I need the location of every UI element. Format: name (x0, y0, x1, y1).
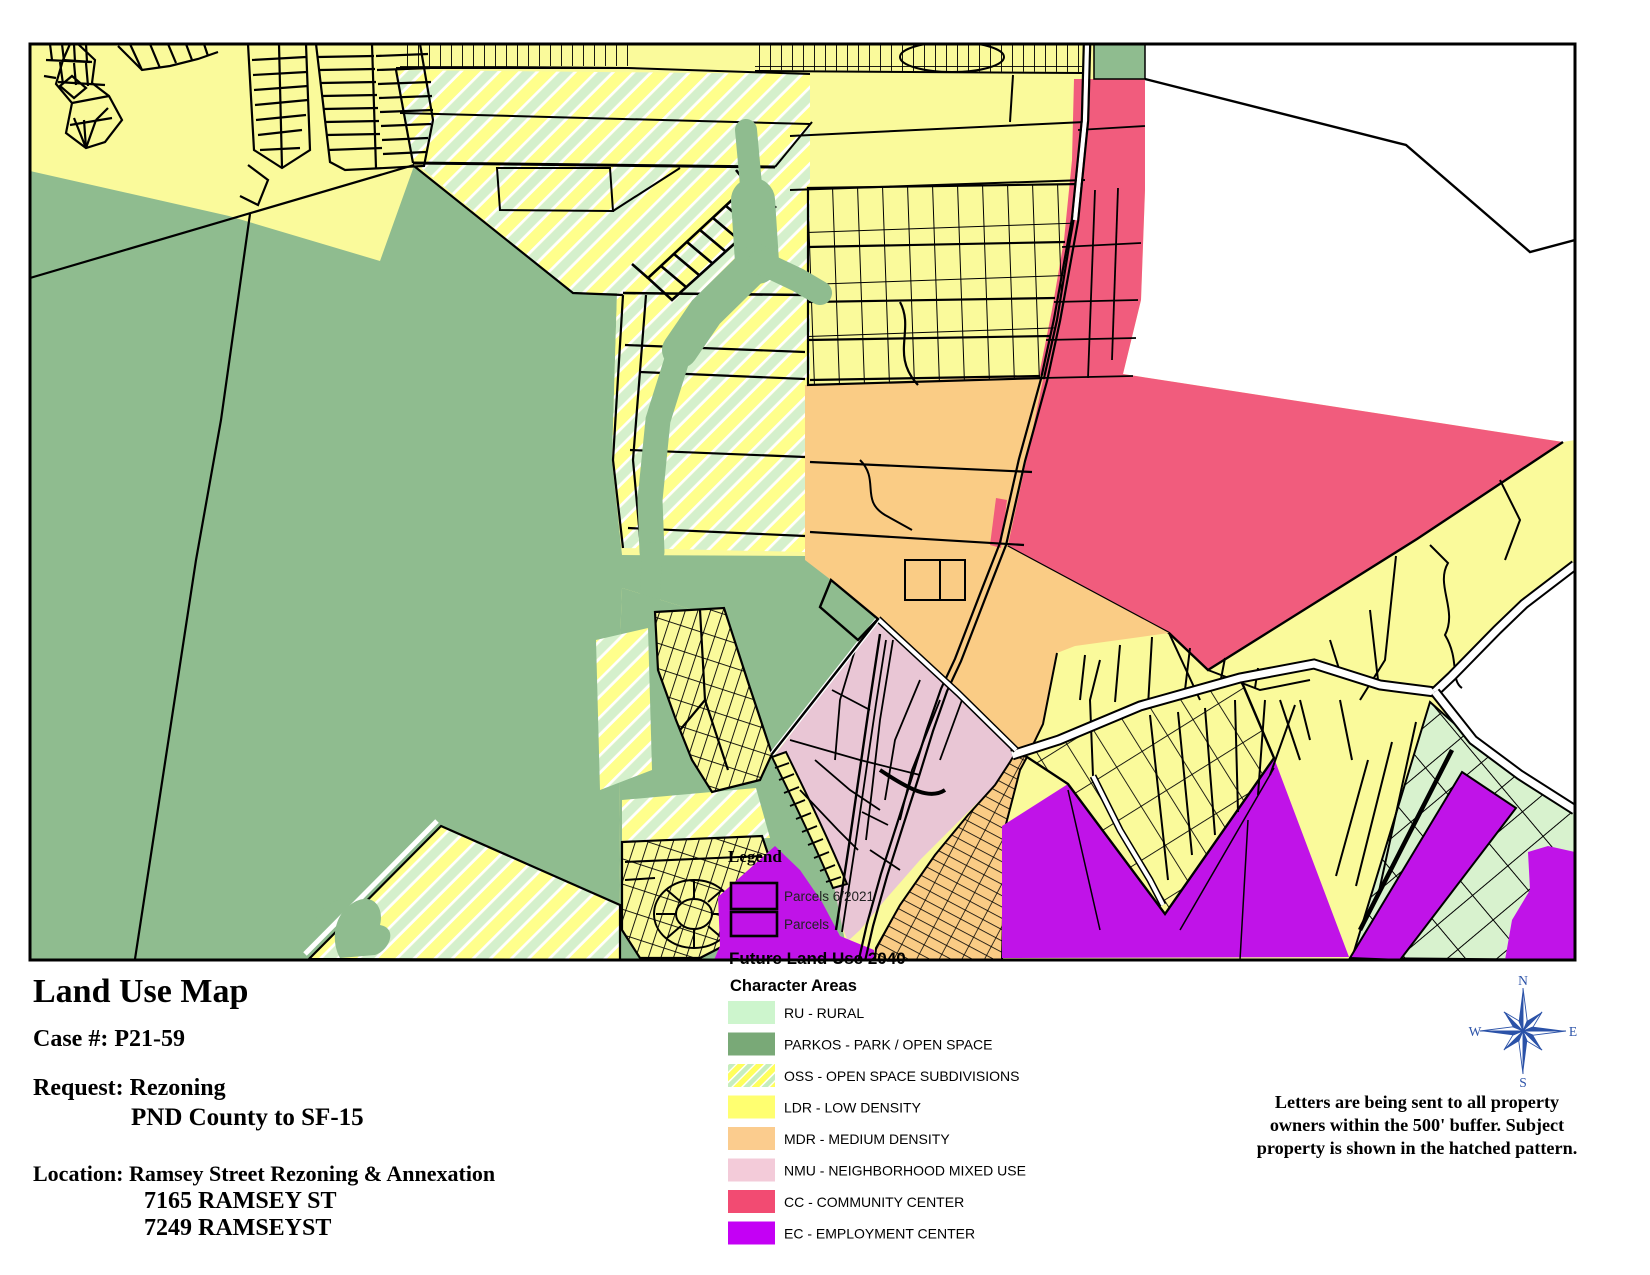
svg-text:Future Land Use 2040: Future Land Use 2040 (729, 949, 906, 968)
svg-text:Legend: Legend (728, 847, 782, 866)
svg-text:Parcels 6/2021: Parcels 6/2021 (784, 889, 874, 904)
svg-text:LDR - LOW DENSITY: LDR - LOW DENSITY (784, 1100, 922, 1116)
svg-text:NMU - NEIGHBORHOOD MIXED USE: NMU - NEIGHBORHOOD MIXED USE (784, 1163, 1026, 1179)
svg-text:MDR - MEDIUM DENSITY: MDR - MEDIUM DENSITY (784, 1131, 950, 1147)
svg-text:Parcels: Parcels (784, 917, 829, 932)
svg-text:OSS - OPEN SPACE SUBDIVISIONS: OSS - OPEN SPACE SUBDIVISIONS (784, 1068, 1019, 1084)
svg-text:CC - COMMUNITY CENTER: CC - COMMUNITY CENTER (784, 1194, 964, 1210)
svg-text:EC - EMPLOYMENT CENTER: EC - EMPLOYMENT CENTER (784, 1226, 975, 1242)
svg-text:W: W (1469, 1024, 1482, 1039)
svg-text:Character Areas: Character Areas (730, 977, 857, 995)
svg-text:7165 RAMSEY ST: 7165 RAMSEY ST (144, 1188, 336, 1214)
svg-text:owners within the 500' buffer.: owners within the 500' buffer. Subject (1270, 1115, 1564, 1135)
svg-text:E: E (1569, 1024, 1577, 1039)
svg-text:Letters are being sent to all: Letters are being sent to all property (1275, 1092, 1559, 1112)
svg-text:Location: Ramsey Street Rezon: Location: Ramsey Street Rezoning & Annex… (33, 1161, 495, 1186)
svg-text:7249 RAMSEYST: 7249 RAMSEYST (144, 1215, 331, 1241)
svg-text:N: N (1518, 973, 1528, 988)
svg-text:S: S (1519, 1075, 1527, 1090)
svg-text:Land Use Map: Land Use Map (33, 973, 248, 1010)
svg-text:PARKOS - PARK / OPEN SPACE: PARKOS - PARK / OPEN SPACE (784, 1037, 993, 1053)
svg-text:Case #: P21-59: Case #: P21-59 (33, 1026, 185, 1052)
svg-text:property is shown in the hatch: property is shown in the hatched pattern… (1257, 1138, 1578, 1158)
svg-text:Request: Rezoning: Request: Rezoning (33, 1075, 226, 1101)
svg-text:RU - RURAL: RU - RURAL (784, 1005, 864, 1021)
svg-text:PND County to SF-15: PND County to SF-15 (131, 1104, 364, 1131)
